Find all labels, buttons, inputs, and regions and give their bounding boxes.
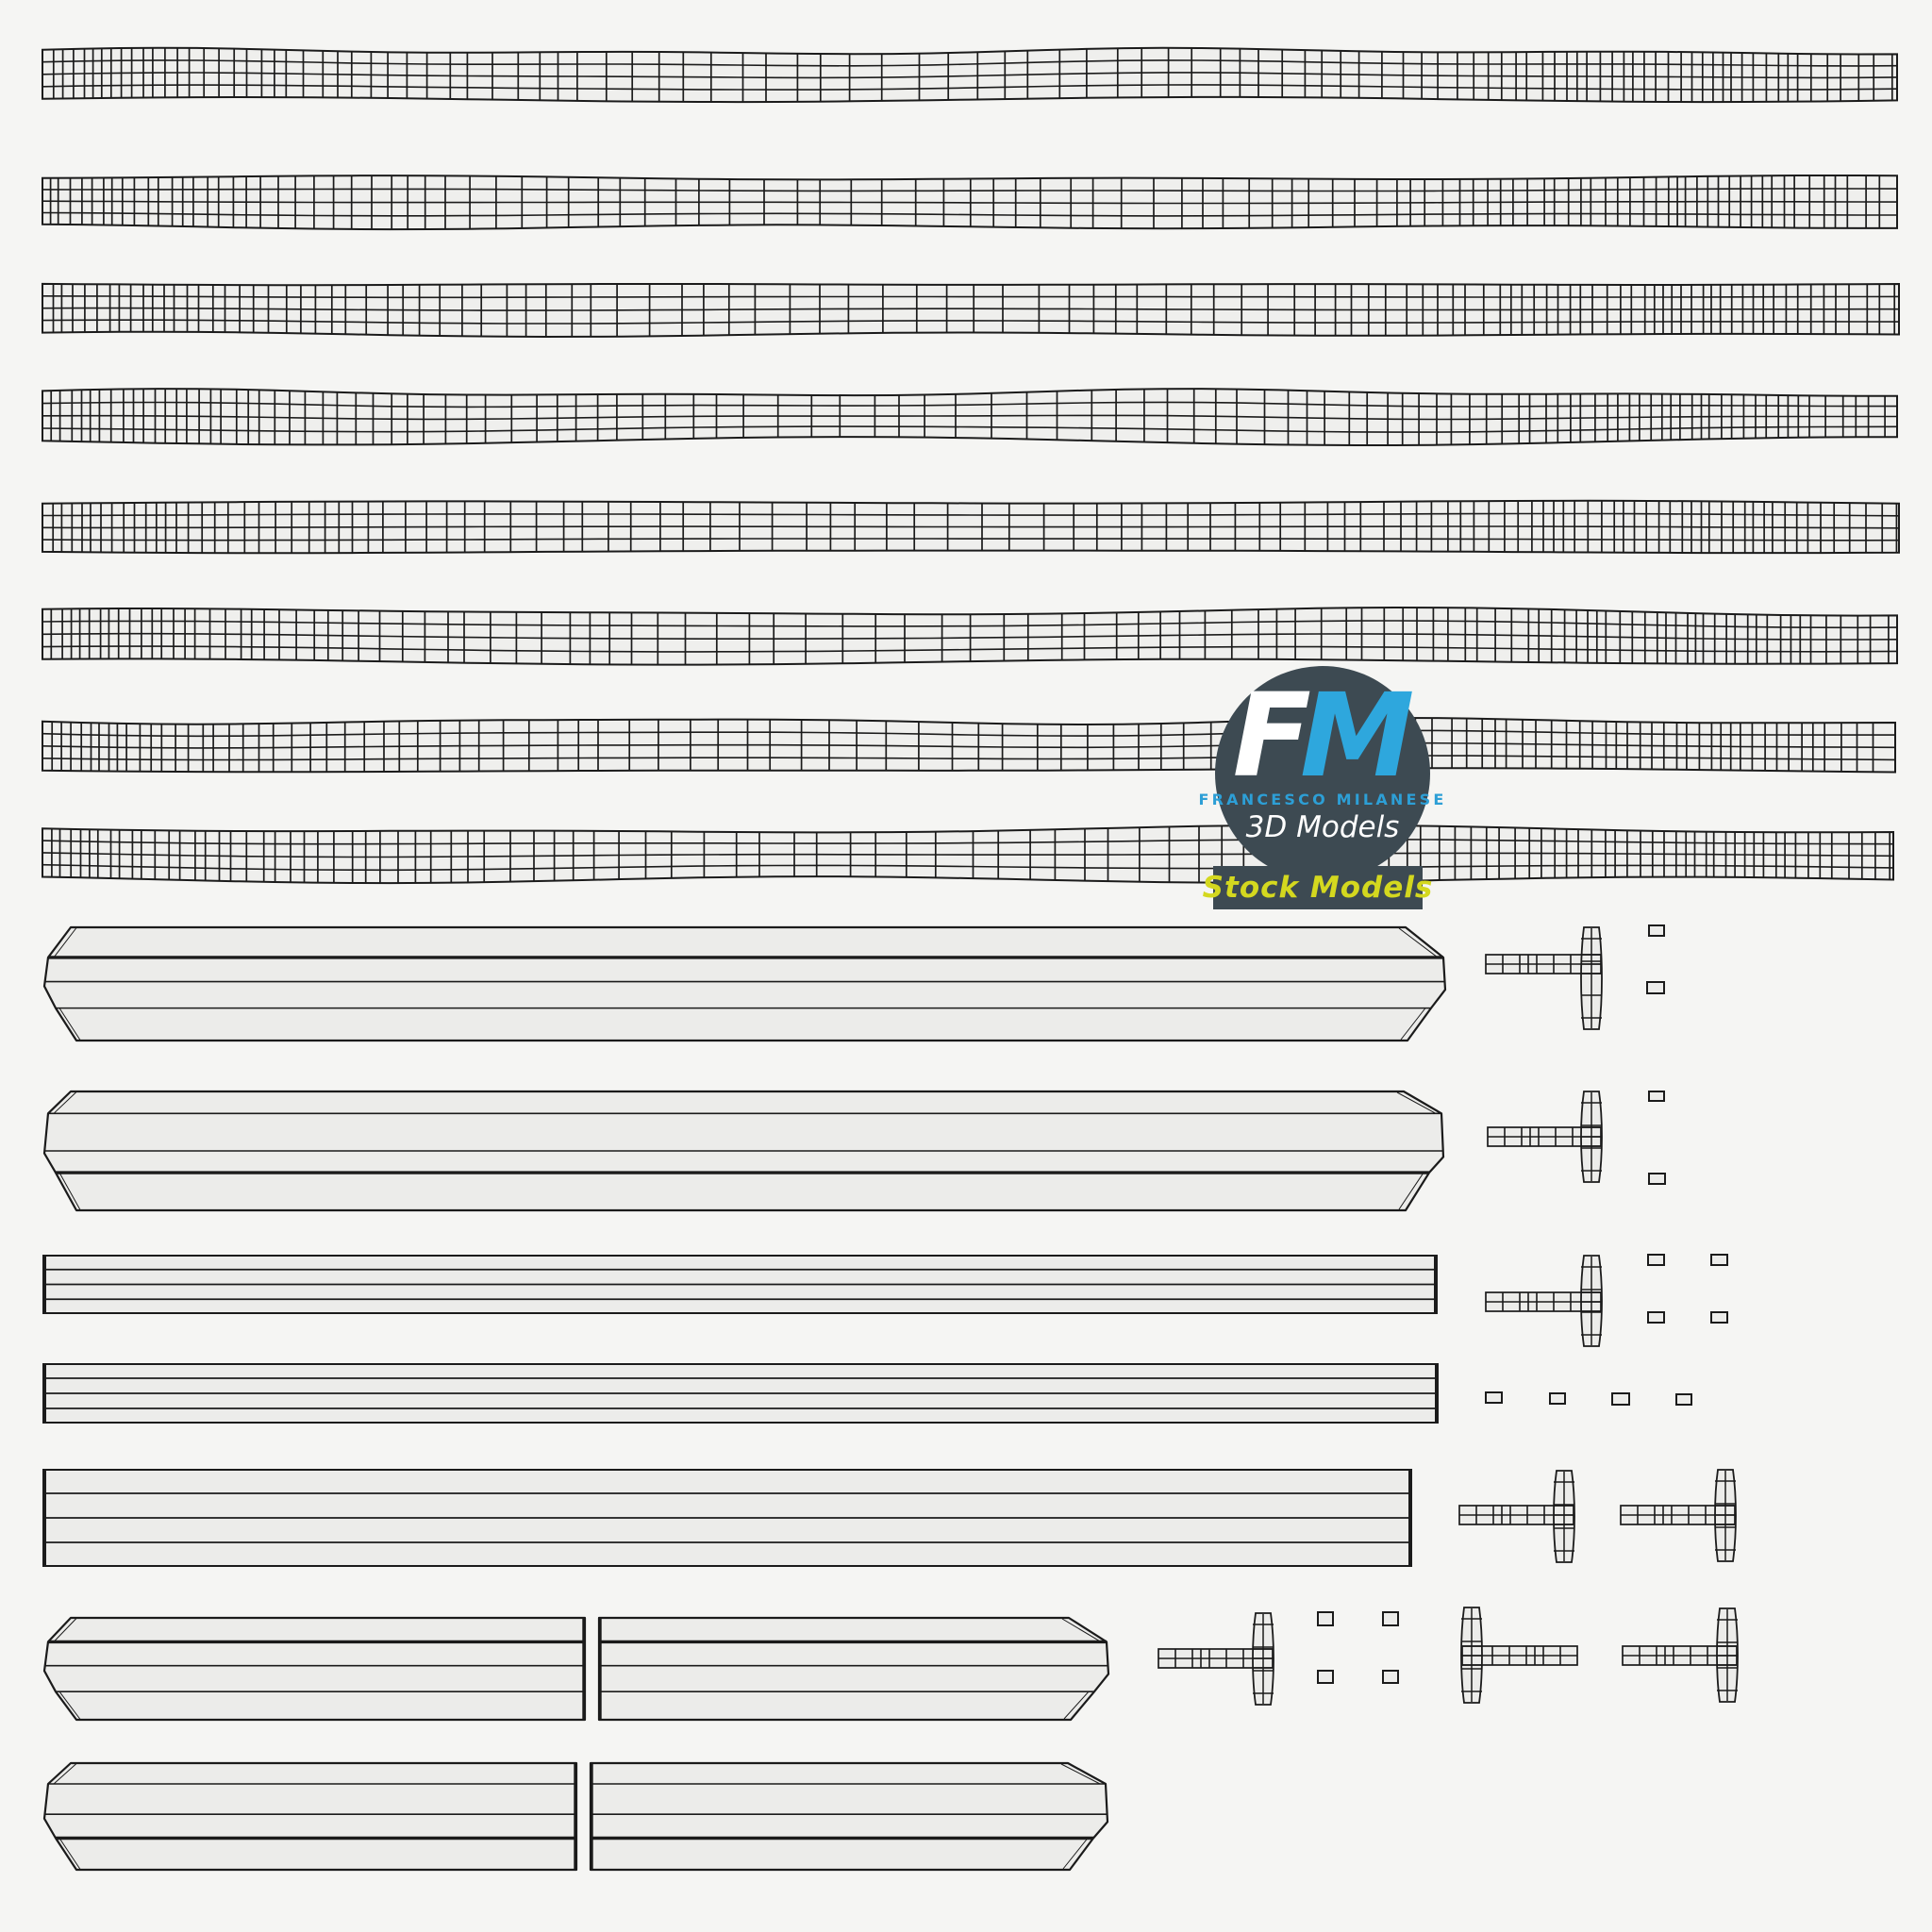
quad-chip-mesh: [1318, 1671, 1333, 1683]
pencil-segment: [599, 1618, 1108, 1720]
slab-beam-mesh: [43, 1256, 1437, 1313]
stock-models-badge: Stock Models: [1213, 866, 1423, 909]
quad-chip-mesh: [1486, 1392, 1502, 1403]
logo-brand-name: FRANCESCO MILANESE: [1199, 791, 1447, 808]
tip-unwrap-mesh: [1488, 1091, 1602, 1182]
wireframe-strip: [42, 718, 1895, 773]
quad-chip-mesh: [1676, 1394, 1691, 1405]
slab-beam-mesh: [43, 1470, 1411, 1566]
pencil-segment: [44, 1618, 585, 1720]
logo-tagline: 3D Models: [1246, 810, 1400, 844]
wireframe-strip: [42, 825, 1893, 884]
quad-chip-mesh: [1647, 982, 1664, 993]
tip-unwrap-mesh: [1461, 1607, 1577, 1703]
logo-letter-m: M: [1300, 669, 1403, 803]
quad-chip-mesh: [1649, 1091, 1664, 1101]
quad-chip-mesh: [1648, 1312, 1664, 1323]
wireframe-graphics-layer: [0, 0, 1932, 1932]
quad-chip-mesh: [1612, 1393, 1629, 1405]
pencil-segment: [591, 1763, 1108, 1870]
quad-chip-mesh: [1711, 1312, 1727, 1323]
quad-chip-mesh: [1383, 1612, 1398, 1625]
slab-beam-mesh: [43, 1364, 1438, 1423]
tip-unwrap-mesh: [1158, 1613, 1274, 1705]
wireframe-strip: [42, 284, 1899, 337]
tip-unwrap-mesh: [1486, 1256, 1602, 1346]
tip-unwrap-mesh: [1459, 1471, 1574, 1562]
tip-unwrap-mesh: [1623, 1608, 1738, 1702]
quad-chip-mesh: [1550, 1393, 1565, 1404]
quad-chip-mesh: [1649, 1174, 1665, 1184]
quad-chip-mesh: [1648, 1255, 1664, 1265]
pencil-beam-mesh: [44, 1091, 1443, 1210]
wireframe-strip: [42, 175, 1897, 229]
badge-label: Stock Models: [1203, 871, 1434, 905]
pencil-segment: [44, 1763, 576, 1870]
quad-chip-mesh: [1649, 925, 1664, 936]
wireframe-strip: [42, 48, 1897, 102]
quad-chip-mesh: [1383, 1671, 1398, 1683]
pencil-beam-mesh: [44, 927, 1445, 1041]
quad-chip-mesh: [1711, 1255, 1727, 1265]
wireframe-strip: [42, 608, 1897, 665]
model-wireframe-preview: FM FRANCESCO MILANESE 3D Models Stock Mo…: [0, 0, 1932, 1932]
tip-unwrap-mesh: [1486, 927, 1602, 1029]
logo-letter-f: F: [1233, 669, 1300, 803]
logo-circle: FM FRANCESCO MILANESE 3D Models: [1215, 666, 1430, 881]
wireframe-strip: [42, 501, 1899, 553]
wireframe-strip: [42, 389, 1897, 445]
quad-chip-mesh: [1318, 1612, 1333, 1625]
tip-unwrap-mesh: [1621, 1470, 1736, 1561]
logo-monogram: FM: [1233, 683, 1404, 789]
